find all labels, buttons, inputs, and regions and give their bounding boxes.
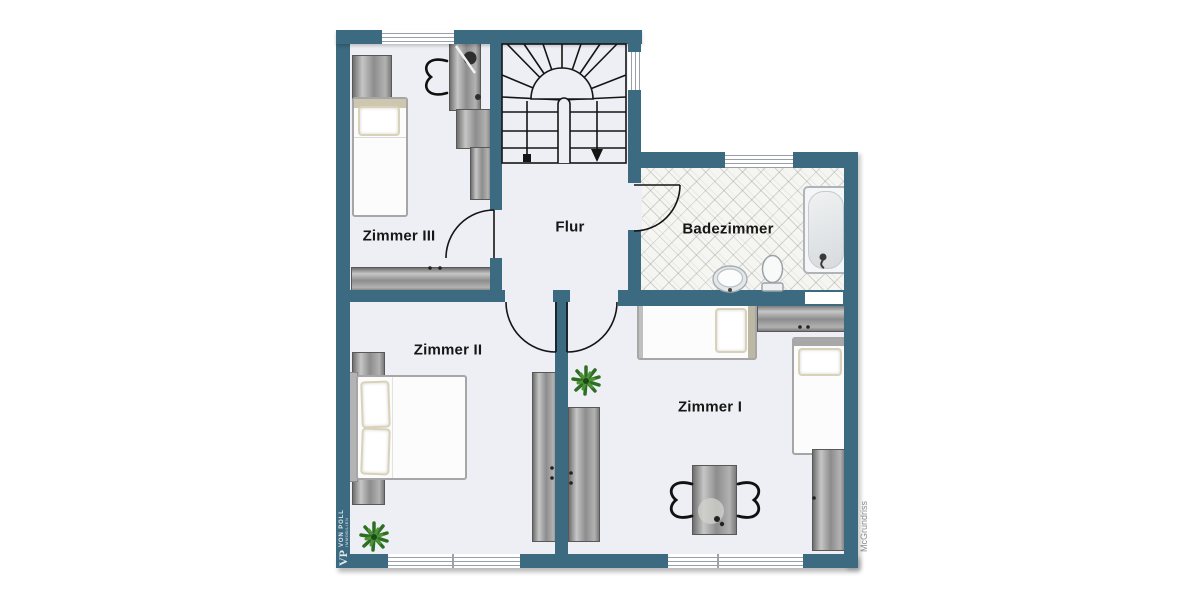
wardrobe	[470, 147, 492, 200]
room-label-zimmer-3: Zimmer III	[363, 228, 436, 245]
nightstand	[352, 478, 385, 505]
brand-watermark: VP VON POLL IMMOBILIEN	[337, 470, 350, 566]
floor-plan: Zimmer III Flur Badezimmer Zimmer II Zim…	[0, 0, 1200, 600]
wall	[336, 290, 505, 302]
bed-pillow	[360, 428, 391, 476]
bed-pillow	[798, 348, 842, 376]
wall	[628, 230, 641, 290]
wardrobe	[812, 449, 846, 551]
wall-niche	[805, 292, 843, 304]
room-label-zimmer-1: Zimmer I	[678, 399, 742, 416]
wall	[844, 152, 858, 568]
desk	[692, 465, 737, 535]
bed-pillow	[358, 106, 400, 136]
bathtub	[803, 186, 849, 274]
window	[388, 554, 520, 568]
window	[382, 30, 454, 44]
room-label-zimmer-2: Zimmer II	[414, 342, 483, 359]
brand-sub: IMMOBILIEN	[345, 509, 349, 547]
single-bed	[637, 303, 757, 360]
bed-pillow	[360, 381, 391, 429]
wall	[490, 258, 502, 302]
window-mullion	[717, 554, 719, 568]
double-bed	[356, 375, 467, 480]
bed-pillow	[715, 308, 747, 353]
wall	[628, 30, 641, 52]
badezimmer-doorway-floor	[628, 183, 642, 230]
wall	[490, 44, 502, 210]
single-bed	[792, 337, 849, 455]
bathtub-basin	[808, 191, 844, 269]
wall	[628, 90, 641, 183]
wall	[555, 302, 568, 554]
single-bed	[352, 97, 408, 217]
room-label-badezimmer: Badezimmer	[682, 221, 773, 238]
bed-foot	[639, 305, 643, 358]
credit-watermark: McGrundriss	[859, 482, 869, 552]
cabinet	[456, 109, 492, 149]
bed-blanket-fold	[392, 377, 393, 478]
dresser	[352, 55, 392, 102]
window	[668, 554, 803, 568]
room-label-flur: Flur	[555, 219, 584, 236]
window	[725, 152, 793, 168]
bed-blanket-fold	[354, 137, 406, 138]
shelf	[757, 304, 847, 332]
wall	[553, 290, 570, 302]
bed-headboard	[794, 339, 847, 346]
window-mullion	[452, 554, 454, 568]
bed-headboard	[748, 305, 755, 358]
brand-monogram: VP	[336, 550, 351, 566]
window	[628, 52, 641, 90]
sideboard	[351, 267, 491, 292]
desk	[449, 41, 481, 111]
wardrobe	[568, 407, 600, 542]
